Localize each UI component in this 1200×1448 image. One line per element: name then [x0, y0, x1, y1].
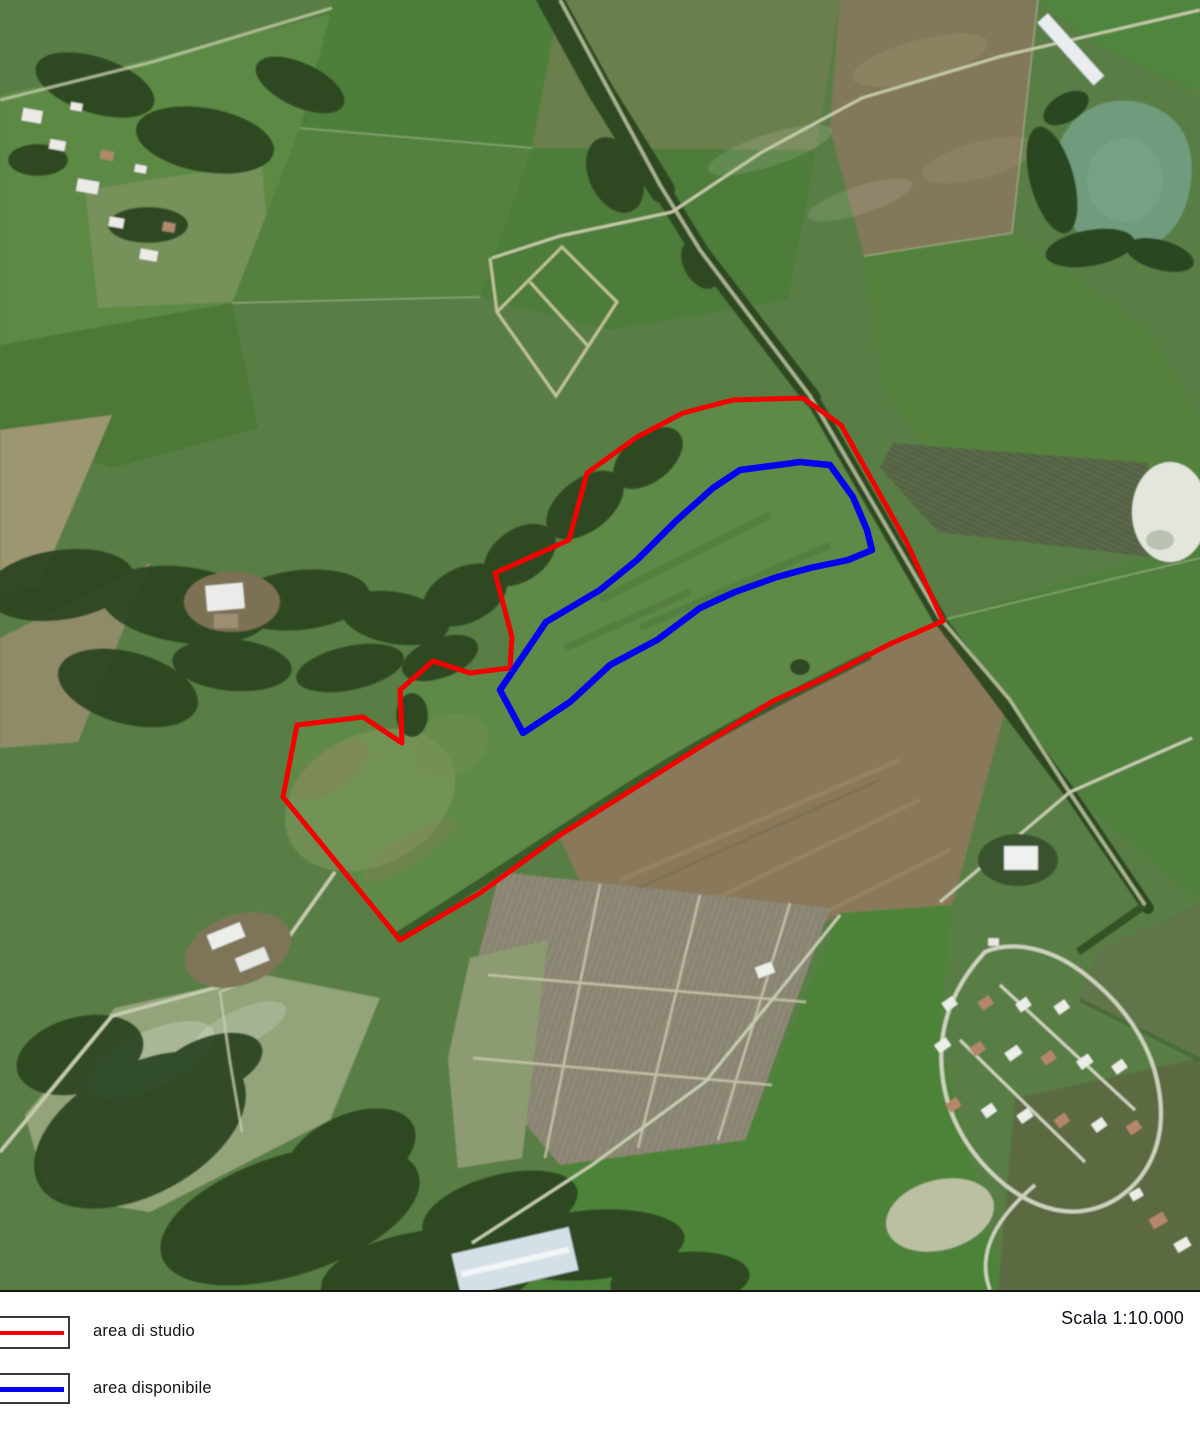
terrain-layer [0, 0, 1200, 1290]
page: area di studio area disponibile Scala 1:… [0, 0, 1200, 1448]
map-footer: area di studio area disponibile Scala 1:… [0, 1292, 1200, 1448]
legend-label-available-area: area disponibile [93, 1379, 212, 1398]
legend-line-blue [0, 1387, 64, 1392]
scale-label: Scala 1:10.000 [1061, 1308, 1184, 1329]
legend-label-study-area: area di studio [93, 1322, 195, 1341]
legend-swatch-available-area [0, 1373, 70, 1404]
satellite-map-image [0, 0, 1200, 1290]
satellite-map [0, 0, 1200, 1292]
legend-line-red [0, 1331, 64, 1335]
legend-swatch-study-area [0, 1316, 70, 1349]
